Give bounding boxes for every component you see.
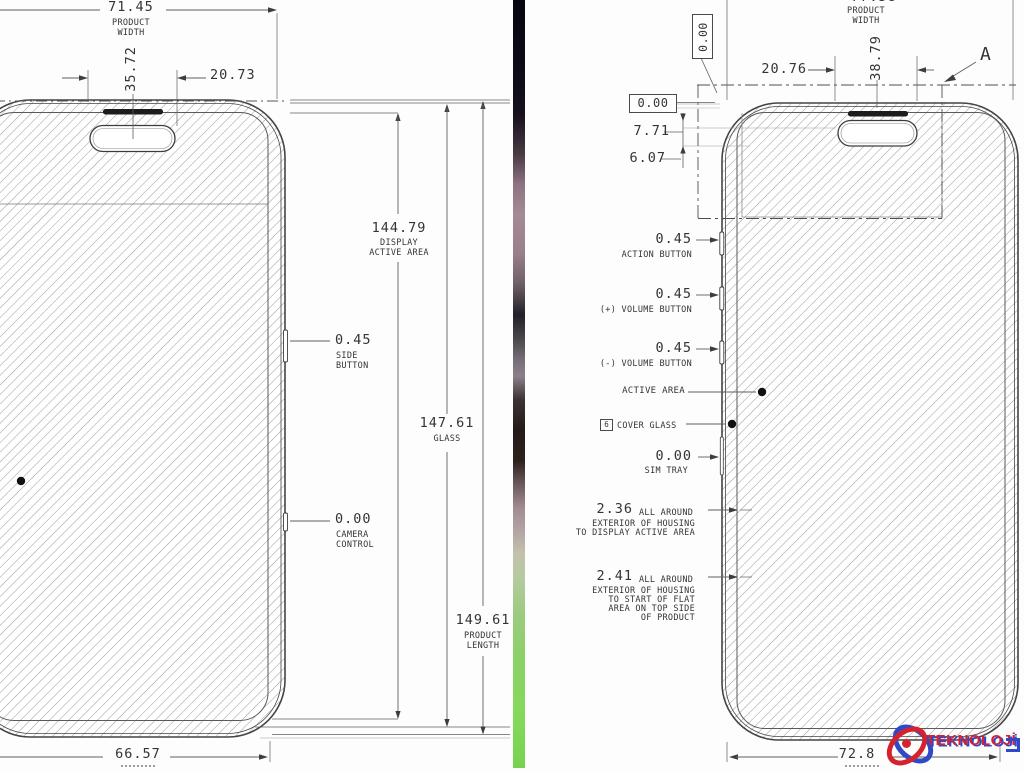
left-camera-control-label: CAMERACONTROL xyxy=(336,530,374,550)
right-sim-tray-label: SIM TRAY xyxy=(595,466,688,476)
left-product-length-label: PRODUCTLENGTH xyxy=(443,631,523,651)
right-volume-plus-label: (+) VOLUME BUTTON xyxy=(545,305,692,315)
left-side-button-label: SIDEBUTTON xyxy=(336,351,369,371)
right-product-width-label: PRODUCTWIDTH xyxy=(828,6,904,26)
right-volume-minus-label: (-) VOLUME BUTTON xyxy=(545,359,692,369)
right-note241-value: 2.41 xyxy=(578,569,633,585)
right-volume-minus-value: 0.45 xyxy=(632,341,692,357)
left-product-width-value: 71.45 xyxy=(93,0,169,16)
left-product-length-value: 149.61 xyxy=(443,613,523,629)
sim-tray-mark xyxy=(720,437,723,475)
right-datum-zero-left-box: 0.00 xyxy=(629,94,677,113)
right-datum-zero-top-box: 0.00 xyxy=(692,14,713,59)
action-button-mark xyxy=(720,232,724,255)
side-button-mark xyxy=(284,330,288,362)
right-phone-drawing xyxy=(525,0,1024,768)
right-action-button-value: 0.45 xyxy=(632,232,692,248)
left-display-label: DISPLAYACTIVE AREA xyxy=(354,238,444,258)
right-island-width-value: 38.79 xyxy=(869,28,885,88)
dynamic-island xyxy=(90,126,175,152)
cover-glass-dot xyxy=(728,420,736,428)
clipped-label-remnant xyxy=(845,765,879,767)
right-note236-value: 2.36 xyxy=(578,502,633,518)
atom-logo-dot xyxy=(902,739,911,748)
phone-outline xyxy=(0,100,285,737)
right-sim-tray-value: 0.00 xyxy=(632,449,692,465)
detail-a-label: A xyxy=(980,44,991,65)
left-glass-label: GLASS xyxy=(407,434,487,444)
right-cover-glass-flag: 6 xyxy=(600,419,613,432)
volume-plus-mark xyxy=(720,287,724,310)
right-note241-line5: OF PRODUCT xyxy=(550,613,695,623)
background-photo-strip xyxy=(513,0,525,768)
watermark: TEKNOLOJİ xyxy=(876,712,1024,768)
right-cover-glass-label: COVER GLASS xyxy=(617,421,677,431)
right-note236-suffix: ALL AROUND xyxy=(639,508,693,518)
clipped-label-remnant xyxy=(121,765,155,767)
watermark-text: TEKNOLOJİ xyxy=(926,732,1016,749)
volume-minus-mark xyxy=(720,341,724,364)
reference-dot xyxy=(17,477,25,485)
left-island-width-value: 35.72 xyxy=(124,39,140,99)
left-product-width-label: PRODUCTWIDTH xyxy=(90,18,172,38)
dynamic-island xyxy=(838,121,917,147)
left-glass-value: 147.61 xyxy=(407,416,487,432)
left-side-button-value: 0.45 xyxy=(335,333,372,349)
right-action-button-label: ACTION BUTTON xyxy=(560,250,692,260)
right-note241-suffix: ALL AROUND xyxy=(639,575,693,585)
left-phone-drawing xyxy=(0,0,513,768)
left-island-offset-value: 20.73 xyxy=(210,68,256,84)
phone-outline xyxy=(722,103,1018,740)
watermark-bracket-icon xyxy=(1006,738,1020,752)
left-display-value: 144.79 xyxy=(359,221,439,237)
left-camera-control-value: 0.00 xyxy=(335,512,372,528)
active-area-dot xyxy=(758,388,766,396)
right-island-top-value: 7.71 xyxy=(610,124,670,140)
right-active-area-label: ACTIVE AREA xyxy=(560,386,685,397)
right-island-bottom-value: 6.07 xyxy=(606,151,666,167)
right-volume-plus-value: 0.45 xyxy=(632,287,692,303)
schematic-screenshot: { "left": { "product_width": {"value": "… xyxy=(0,0,1024,768)
left-bottom-width-value: 66.57 xyxy=(98,747,178,763)
right-island-offset-value: 20.76 xyxy=(747,62,807,78)
front-camera-bar xyxy=(848,111,908,117)
camera-control-mark xyxy=(284,513,288,531)
right-note236-line3: TO DISPLAY ACTIVE AREA xyxy=(543,528,695,538)
